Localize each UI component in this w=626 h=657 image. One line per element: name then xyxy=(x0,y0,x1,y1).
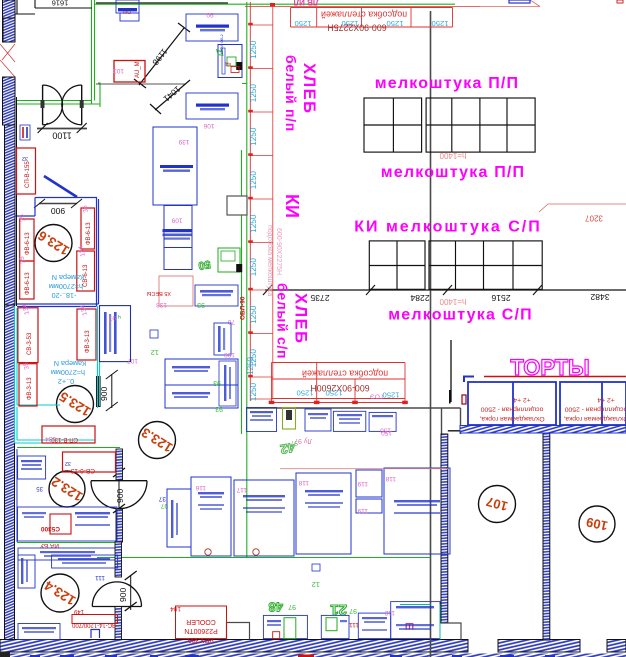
svg-text:37: 37 xyxy=(158,495,166,502)
svg-text:КИ: КИ xyxy=(282,194,302,218)
svg-text:1616: 1616 xyxy=(52,0,69,8)
svg-text:1250: 1250 xyxy=(249,40,258,59)
svg-text:ФВ-3-13: ФВ-3-13 xyxy=(85,330,91,353)
svg-text:900: 900 xyxy=(118,588,128,602)
svg-text:ФВ-3-13: ФВ-3-13 xyxy=(27,377,33,400)
svg-text:107: 107 xyxy=(127,357,138,364)
svg-text:1250: 1250 xyxy=(249,382,258,401)
svg-text:112: 112 xyxy=(384,609,395,616)
svg-text:1250: 1250 xyxy=(246,356,255,374)
svg-text:900: 900 xyxy=(115,489,125,503)
svg-text:900: 900 xyxy=(51,206,65,216)
svg-text:109: 109 xyxy=(171,217,182,224)
svg-text:2735: 2735 xyxy=(310,293,329,303)
svg-text:осциллярная - 2500: осциллярная - 2500 xyxy=(480,406,543,413)
svg-text:149: 149 xyxy=(73,608,84,614)
svg-text:93: 93 xyxy=(213,379,221,386)
svg-text:97: 97 xyxy=(349,607,357,614)
svg-text:-18..-20: -18..-20 xyxy=(52,291,77,300)
svg-text:139: 139 xyxy=(178,138,189,145)
svg-text:106: 106 xyxy=(203,122,214,129)
svg-text:1250: 1250 xyxy=(249,214,258,233)
svg-text:X5 ВЕСЫ: X5 ВЕСЫ xyxy=(146,290,171,296)
svg-text:1250: 1250 xyxy=(383,391,400,400)
svg-text:119: 119 xyxy=(357,507,368,514)
svg-text:2516: 2516 xyxy=(491,293,510,303)
svg-text:мелкоштука С/П: мелкоштука С/П xyxy=(388,307,533,324)
svg-text:СП-В-155: СП-В-155 xyxy=(25,161,31,188)
svg-text:150: 150 xyxy=(381,429,392,436)
svg-text:116: 116 xyxy=(195,484,206,491)
svg-text:12: 12 xyxy=(312,580,320,589)
svg-text:+2 +4: +2 +4 xyxy=(597,396,615,403)
svg-text:VRX380: VRX380 xyxy=(188,636,214,643)
svg-text:COOLER: COOLER xyxy=(186,618,216,625)
svg-text:108: 108 xyxy=(224,351,235,358)
svg-text:Камера N: Камера N xyxy=(54,359,86,368)
svg-text:97: 97 xyxy=(108,314,116,321)
svg-text:ГОЭ: ГОЭ xyxy=(370,393,383,400)
svg-text:118: 118 xyxy=(385,475,396,482)
svg-text:119: 119 xyxy=(357,480,368,487)
svg-text:ОБЛ-90: ОБЛ-90 xyxy=(240,296,247,320)
svg-text:h=2700мм: h=2700мм xyxy=(49,282,83,291)
svg-text:ФВ-6-13: ФВ-6-13 xyxy=(25,272,31,295)
svg-text:134: 134 xyxy=(45,435,56,442)
svg-text:ВС-14-1200/700: ВС-14-1200/700 xyxy=(71,622,115,628)
svg-text:12: 12 xyxy=(151,348,159,357)
svg-text:AU_M: AU_M xyxy=(135,61,141,78)
svg-text:ХЛЕБ: ХЛЕБ xyxy=(300,63,318,114)
svg-text:h=2700мм: h=2700мм xyxy=(51,368,85,377)
svg-text:СВ-3-53: СВ-3-53 xyxy=(27,332,33,355)
svg-text:h=1400: h=1400 xyxy=(439,297,466,306)
svg-text:мелкоштука П/П: мелкоштука П/П xyxy=(381,164,526,181)
svg-text:3207: 3207 xyxy=(585,214,603,223)
svg-text:подсобка стеллажей: подсобка стеллажей xyxy=(302,369,388,379)
svg-text:1250: 1250 xyxy=(249,84,258,103)
svg-text:97: 97 xyxy=(290,439,298,446)
svg-text:С5300: С5300 xyxy=(40,525,60,532)
svg-text:белый п/п: белый п/п xyxy=(283,55,299,132)
svg-text:Охлаждаемая горка,: Охлаждаемая горка, xyxy=(563,415,626,422)
svg-text:ЛВ ИЛ: ЛВ ИЛ xyxy=(293,0,318,7)
svg-text:+2 +4: +2 +4 xyxy=(513,396,531,403)
svg-text:1250: 1250 xyxy=(249,127,258,146)
svg-text:3482: 3482 xyxy=(590,292,609,302)
svg-text:0..+2: 0..+2 xyxy=(58,377,74,386)
svg-text:111: 111 xyxy=(349,621,359,628)
svg-text:подсобка мелкоштука: подсобка мелкоштука xyxy=(266,225,274,296)
svg-text:ВД: ВД xyxy=(225,62,231,67)
svg-text:35: 35 xyxy=(36,485,43,491)
svg-text:32: 32 xyxy=(65,460,71,466)
svg-text:93: 93 xyxy=(215,405,223,412)
svg-text:93: 93 xyxy=(197,301,205,308)
svg-text:1100: 1100 xyxy=(52,131,71,141)
svg-text:осциллярная - 2500: осциллярная - 2500 xyxy=(564,406,626,413)
svg-text:белый с/п: белый с/п xyxy=(275,283,291,359)
svg-text:ХЛЕБ: ХЛЕБ xyxy=(292,293,310,344)
svg-text:138: 138 xyxy=(156,301,167,308)
svg-text:1250: 1250 xyxy=(326,389,343,398)
svg-text:118: 118 xyxy=(298,479,309,486)
svg-text:Камера N: Камера N xyxy=(52,273,84,282)
svg-text:2284: 2284 xyxy=(410,293,429,303)
svg-text:50: 50 xyxy=(197,258,211,272)
svg-text:ч: ч xyxy=(118,313,121,320)
svg-text:1250: 1250 xyxy=(295,19,312,28)
svg-text:117: 117 xyxy=(236,486,247,493)
svg-text:103: 103 xyxy=(113,67,124,74)
svg-text:P22600TN: P22600TN xyxy=(184,627,217,634)
svg-text:мелкоштука П/П: мелкоштука П/П xyxy=(375,75,520,92)
svg-text:600-90X2275H: 600-90X2275H xyxy=(327,23,386,33)
svg-text:СВ-6-13: СВ-6-13 xyxy=(70,467,95,474)
svg-text:32: 32 xyxy=(22,155,28,161)
svg-text:900: 900 xyxy=(99,387,109,401)
svg-text:90: 90 xyxy=(206,11,214,18)
svg-text:1250: 1250 xyxy=(432,19,449,28)
svg-text:ФВ-6-13: ФВ-6-13 xyxy=(25,232,31,255)
svg-text:Охлаждаемая горка,: Охлаждаемая горка, xyxy=(479,415,544,422)
svg-text:1250: 1250 xyxy=(297,389,314,398)
svg-text:1250: 1250 xyxy=(387,19,404,28)
svg-text:600-90X2275H: 600-90X2275H xyxy=(275,228,282,275)
svg-text:ФВ-6-13: ФВ-6-13 xyxy=(86,222,92,245)
svg-text:КИ мелкоштука С/П: КИ мелкоштука С/П xyxy=(354,219,542,236)
svg-text:ШКАФ ОВ-2: ШКАФ ОВ-2 xyxy=(220,34,224,54)
svg-text:1250: 1250 xyxy=(249,258,258,277)
svg-text:97: 97 xyxy=(288,603,296,610)
svg-text:1250: 1250 xyxy=(249,171,258,190)
svg-text:1250: 1250 xyxy=(249,305,258,324)
svg-text:48: 48 xyxy=(269,600,283,615)
svg-text:подсобка стеллажей: подсобка стеллажей xyxy=(321,10,407,20)
svg-text:h=1400: h=1400 xyxy=(439,151,466,160)
svg-text:111: 111 xyxy=(95,574,105,581)
